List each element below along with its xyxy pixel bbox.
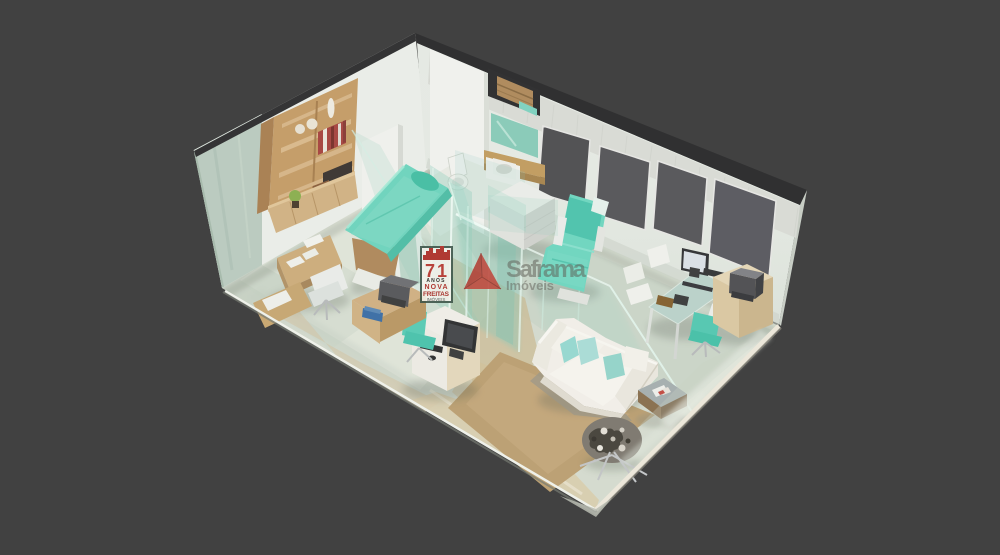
svg-text:NOVA: NOVA	[425, 284, 448, 291]
svg-text:Imóveis: Imóveis	[506, 278, 554, 293]
svg-text:IMÓVEIS: IMÓVEIS	[427, 296, 446, 302]
